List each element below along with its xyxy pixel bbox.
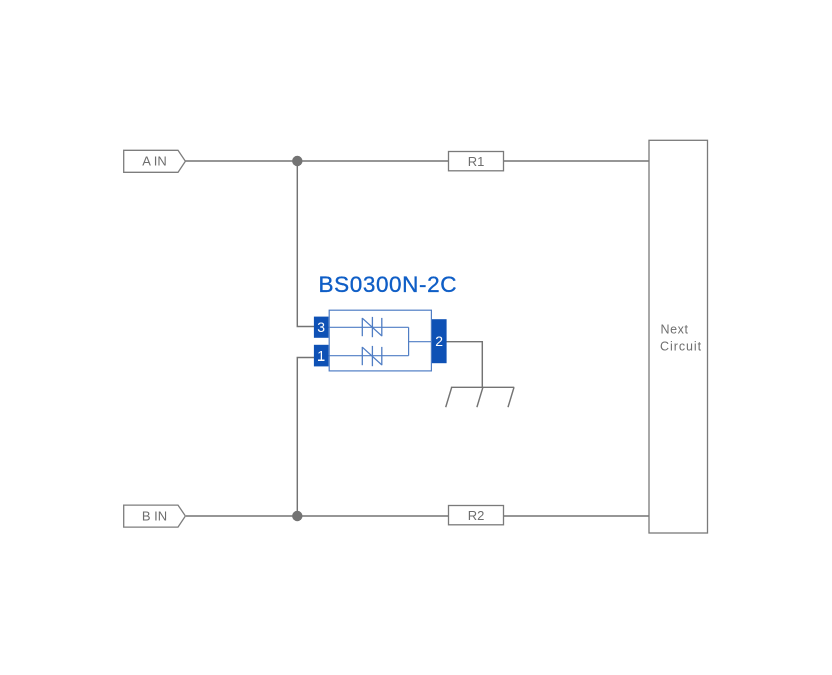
svg-text:2: 2 bbox=[435, 333, 443, 349]
svg-text:R2: R2 bbox=[468, 508, 485, 523]
svg-text:A IN: A IN bbox=[142, 154, 167, 169]
svg-text:BS0300N-2C: BS0300N-2C bbox=[319, 272, 458, 297]
svg-text:3: 3 bbox=[317, 319, 325, 335]
svg-text:R1: R1 bbox=[468, 154, 485, 169]
svg-text:Next: Next bbox=[661, 323, 689, 337]
svg-text:B IN: B IN bbox=[142, 509, 167, 524]
svg-text:1: 1 bbox=[317, 348, 325, 364]
svg-text:Circuit: Circuit bbox=[660, 339, 702, 353]
